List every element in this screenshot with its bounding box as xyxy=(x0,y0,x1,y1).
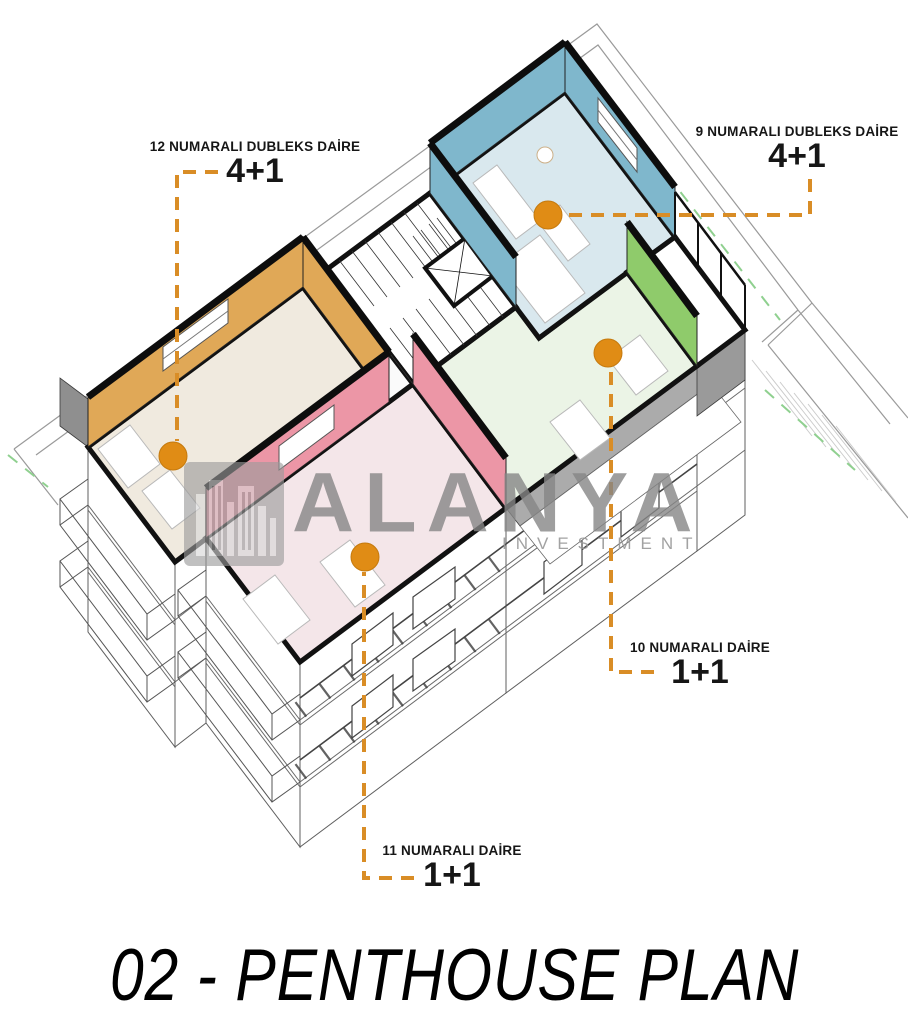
unit-10-label: 10 NUMARALI DAİRE 1+1 xyxy=(600,640,800,690)
unit-12-label-type: 4+1 xyxy=(128,154,382,189)
unit-9-label: 9 NUMARALI DUBLEKS DAİRE 4+1 xyxy=(692,124,902,174)
penthouse-plan-page: ALANYA INVESTMENT 12 NUMARALI DUBLEKS DA… xyxy=(0,0,908,1024)
unit-12-marker xyxy=(159,442,187,470)
unit-11-marker xyxy=(351,543,379,571)
unit-11-label: 11 NUMARALI DAİRE 1+1 xyxy=(352,843,552,893)
unit-10-label-type: 1+1 xyxy=(600,655,800,690)
page-title: 02 - PENTHOUSE PLAN xyxy=(110,934,799,1017)
unit-12-label: 12 NUMARALI DUBLEKS DAİRE 4+1 xyxy=(128,139,382,189)
roof-hatch xyxy=(752,360,896,502)
unit-9-marker xyxy=(534,201,562,229)
unit-10-marker xyxy=(594,339,622,367)
unit-11-label-type: 1+1 xyxy=(352,858,552,893)
unit-9-label-type: 4+1 xyxy=(692,139,902,174)
